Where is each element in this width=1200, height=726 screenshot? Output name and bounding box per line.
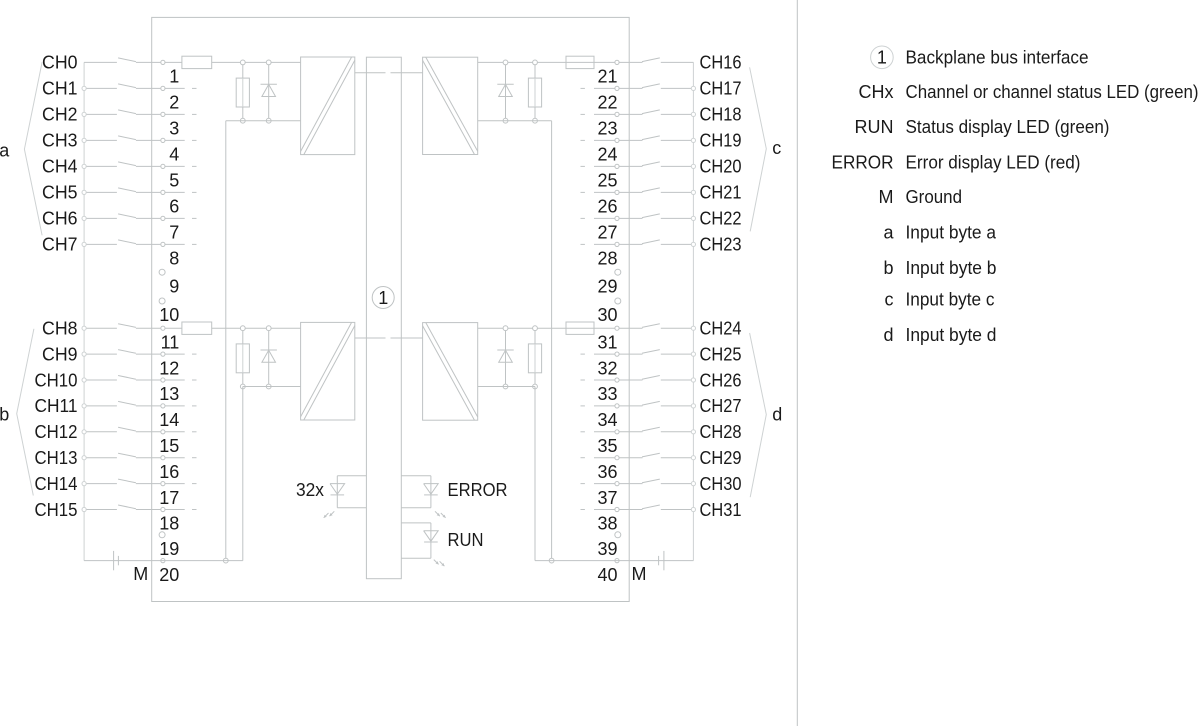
svg-text:CH7: CH7 [42, 235, 78, 255]
svg-text:CH1: CH1 [42, 79, 78, 99]
svg-text:Input byte d: Input byte d [906, 325, 997, 345]
svg-text:Input byte a: Input byte a [906, 223, 997, 243]
svg-text:2: 2 [169, 93, 179, 113]
svg-text:CH5: CH5 [42, 183, 78, 203]
svg-text:a: a [0, 140, 10, 160]
svg-text:a: a [883, 223, 894, 243]
svg-text:9: 9 [169, 276, 179, 296]
svg-text:CH4: CH4 [42, 157, 78, 177]
svg-text:RUN: RUN [855, 117, 894, 137]
svg-text:Ground: Ground [906, 187, 963, 207]
svg-text:CH17: CH17 [700, 79, 742, 99]
svg-text:1: 1 [877, 48, 887, 68]
svg-text:19: 19 [159, 539, 179, 559]
svg-text:CH24: CH24 [700, 319, 742, 339]
svg-text:CH19: CH19 [700, 131, 742, 151]
svg-text:CH11: CH11 [35, 396, 78, 416]
svg-text:CH23: CH23 [700, 235, 742, 255]
svg-text:12: 12 [159, 358, 179, 378]
svg-text:15: 15 [159, 436, 179, 456]
svg-text:39: 39 [597, 539, 617, 559]
svg-text:CH20: CH20 [700, 157, 742, 177]
svg-text:18: 18 [159, 514, 179, 534]
svg-text:CH0: CH0 [42, 53, 78, 73]
svg-text:Channel or channel status LED: Channel or channel status LED (green) [906, 82, 1199, 102]
svg-text:Status display LED (green): Status display LED (green) [906, 117, 1110, 137]
svg-text:3: 3 [169, 119, 179, 139]
svg-text:17: 17 [159, 488, 179, 508]
svg-text:M: M [879, 187, 894, 207]
svg-text:1: 1 [169, 67, 179, 87]
svg-text:38: 38 [597, 514, 617, 534]
svg-text:CH22: CH22 [700, 209, 742, 229]
svg-text:32: 32 [597, 358, 617, 378]
svg-text:CH18: CH18 [700, 105, 742, 125]
svg-text:1: 1 [378, 288, 388, 308]
svg-text:11: 11 [161, 332, 180, 352]
svg-text:CH10: CH10 [35, 370, 78, 390]
svg-text:20: 20 [159, 565, 179, 585]
svg-text:21: 21 [597, 67, 617, 87]
svg-text:CH25: CH25 [700, 344, 742, 364]
svg-text:CH28: CH28 [700, 422, 742, 442]
svg-text:Input byte c: Input byte c [906, 290, 995, 310]
svg-text:CH2: CH2 [42, 105, 78, 125]
svg-text:CH29: CH29 [700, 448, 742, 468]
svg-text:CH27: CH27 [700, 396, 742, 416]
svg-text:RUN: RUN [448, 530, 484, 550]
svg-text:Input byte b: Input byte b [906, 258, 997, 278]
svg-text:CH16: CH16 [700, 53, 742, 73]
svg-text:36: 36 [597, 462, 617, 482]
svg-text:28: 28 [597, 249, 617, 269]
svg-text:26: 26 [597, 197, 617, 217]
svg-text:25: 25 [597, 171, 617, 191]
svg-text:b: b [883, 258, 893, 278]
svg-text:CH30: CH30 [700, 474, 742, 494]
svg-text:22: 22 [597, 93, 617, 113]
svg-text:ERROR: ERROR [832, 152, 894, 172]
svg-text:32x: 32x [296, 480, 324, 500]
svg-text:31: 31 [597, 332, 617, 352]
svg-text:CH3: CH3 [42, 131, 78, 151]
svg-text:CH6: CH6 [42, 209, 78, 229]
svg-text:6: 6 [169, 197, 179, 217]
svg-text:Error display LED (red): Error display LED (red) [906, 152, 1081, 172]
svg-text:23: 23 [597, 119, 617, 139]
svg-text:34: 34 [597, 410, 617, 430]
svg-text:d: d [772, 404, 782, 424]
svg-text:24: 24 [597, 145, 617, 165]
svg-text:CHx: CHx [859, 82, 894, 102]
svg-text:ERROR: ERROR [448, 480, 508, 500]
svg-text:30: 30 [597, 305, 617, 325]
svg-text:CH14: CH14 [35, 474, 78, 494]
svg-text:33: 33 [597, 384, 617, 404]
svg-text:CH21: CH21 [700, 183, 742, 203]
svg-text:27: 27 [597, 223, 617, 243]
svg-text:M: M [133, 564, 148, 584]
svg-text:CH15: CH15 [35, 500, 78, 520]
svg-text:16: 16 [159, 462, 179, 482]
svg-text:c: c [885, 290, 894, 310]
svg-text:13: 13 [159, 384, 179, 404]
svg-text:d: d [883, 325, 893, 345]
svg-text:CH26: CH26 [700, 370, 742, 390]
svg-text:5: 5 [169, 171, 179, 191]
svg-text:CH8: CH8 [42, 319, 78, 339]
svg-text:40: 40 [597, 565, 617, 585]
svg-text:10: 10 [159, 305, 179, 325]
svg-text:4: 4 [169, 145, 179, 165]
svg-text:b: b [0, 404, 9, 424]
svg-text:7: 7 [169, 223, 179, 243]
svg-text:37: 37 [597, 488, 617, 508]
svg-text:35: 35 [597, 436, 617, 456]
svg-text:CH12: CH12 [35, 422, 78, 442]
svg-text:CH9: CH9 [42, 344, 78, 364]
svg-text:M: M [632, 564, 647, 584]
svg-text:Backplane bus interface: Backplane bus interface [906, 48, 1089, 68]
svg-text:c: c [772, 138, 781, 158]
svg-text:14: 14 [159, 410, 179, 430]
svg-text:CH31: CH31 [700, 500, 742, 520]
svg-text:8: 8 [169, 249, 179, 269]
svg-text:CH13: CH13 [35, 448, 78, 468]
svg-text:29: 29 [597, 276, 617, 296]
